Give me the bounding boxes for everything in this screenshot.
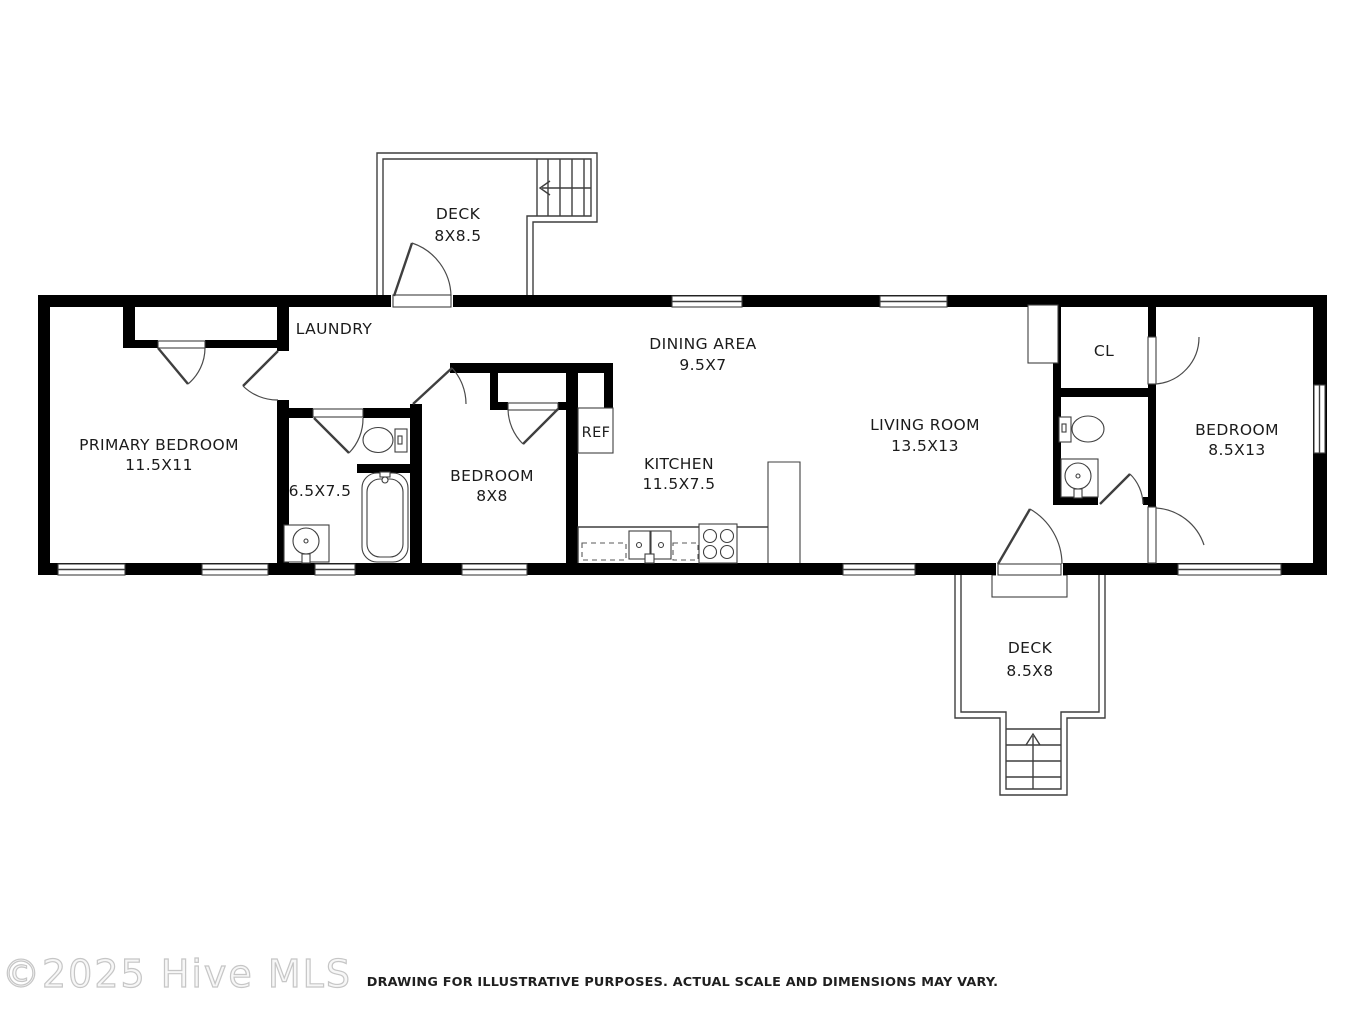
deck-door-threshold [393, 295, 451, 307]
wall-segment [1053, 388, 1156, 397]
utility-nook [1028, 305, 1058, 363]
bedroom-middle-dims: 8X8 [476, 487, 508, 505]
fridge-label: REF [582, 425, 611, 441]
deck-door-top [394, 243, 451, 296]
deck-top-label: DECK [436, 205, 481, 223]
closet-cl-door [1148, 337, 1199, 384]
deck-door-bottom [998, 509, 1062, 564]
kitchen-label: KITCHEN [644, 455, 714, 473]
wall-segment [490, 402, 508, 410]
bedroom-right-label: BEDROOM [1195, 421, 1279, 439]
vanity-sink-icon [1061, 459, 1098, 498]
bedroom-middle-door [413, 368, 466, 404]
window [1314, 385, 1325, 453]
closet-door-threshold [508, 403, 558, 410]
window [1178, 564, 1281, 575]
wall-segment [277, 408, 313, 418]
bedroom-right-door [1148, 507, 1204, 563]
doors [158, 243, 1204, 564]
wall-segment [205, 340, 278, 348]
wall-segment [490, 373, 498, 404]
kitchen-dims: 11.5X7.5 [643, 475, 716, 493]
living-room-label: LIVING ROOM [870, 416, 980, 434]
window [672, 296, 742, 307]
bathroom-2-door [1100, 474, 1143, 504]
kitchen-peninsula [768, 462, 800, 563]
deck-bottom-outer-rail [955, 574, 1105, 795]
living-room-dims: 13.5X13 [891, 437, 959, 455]
bathroom-2-fixtures [1059, 416, 1104, 498]
deck-bottom-label: DECK [1008, 639, 1053, 657]
bathroom-1-dims: 6.5X7.5 [289, 482, 352, 500]
floorplan-page: DECK 8X8.5 DECK 8.5X8 [0, 0, 1365, 1024]
window [880, 296, 947, 307]
dining-area-label: DINING AREA [649, 335, 756, 353]
deck-bottom-inner-rail [961, 574, 1099, 789]
window [58, 564, 125, 575]
disclaimer-text: DRAWING FOR ILLUSTRATIVE PURPOSES. ACTUA… [367, 975, 999, 990]
deck-top-stairs [537, 159, 591, 216]
deck-top: DECK 8X8.5 [377, 153, 597, 296]
bathroom-door-threshold [313, 409, 363, 417]
window [315, 564, 355, 575]
window [843, 564, 915, 575]
bedroom-middle-label: BEDROOM [450, 467, 534, 485]
door-opening [276, 351, 290, 400]
primary-bedroom-dims: 11.5X11 [125, 456, 193, 474]
deck-bottom-dims: 8.5X8 [1006, 662, 1053, 680]
window [202, 564, 268, 575]
wall-segment [123, 340, 158, 348]
deck-top-dims: 8X8.5 [434, 227, 481, 245]
closet-label: CL [1094, 342, 1114, 360]
dining-area-dims: 9.5X7 [679, 356, 726, 374]
toilet-icon [1059, 416, 1104, 442]
wall-segment [1148, 383, 1156, 507]
watermark: ©2025 Hive MLS [2, 952, 352, 996]
window [462, 564, 527, 575]
primary-bedroom-door [243, 351, 278, 400]
bathroom-1-door [314, 418, 363, 453]
wall-segment [410, 404, 422, 563]
kitchen-sink-icon [629, 531, 671, 563]
closet-door-middle [508, 409, 558, 444]
interior-walls [123, 295, 1156, 563]
bathtub-icon [362, 472, 408, 562]
bedroom-right-dims: 8.5X13 [1208, 441, 1265, 459]
vanity-sink-icon [284, 525, 329, 563]
wall-segment [1143, 497, 1156, 505]
deck-door-threshold [998, 564, 1061, 575]
laundry-label: LAUNDRY [296, 320, 373, 338]
deck-bottom-stairs [1006, 729, 1061, 789]
stove-icon [699, 524, 737, 563]
wall-segment [277, 295, 289, 351]
deck-bottom: DECK 8.5X8 [955, 574, 1105, 795]
deck-top-outer-rail [377, 153, 597, 296]
primary-bedroom-label: PRIMARY BEDROOM [79, 436, 239, 454]
wall-segment [604, 373, 613, 408]
cabinet-dashed [673, 543, 698, 560]
wall-segment [566, 363, 578, 563]
wall-segment [450, 363, 613, 373]
floorplan-drawing: DECK 8X8.5 DECK 8.5X8 [0, 0, 1365, 1024]
deck-landing [992, 575, 1067, 597]
fridge: REF [578, 408, 613, 453]
dishwasher-dashed [582, 543, 626, 560]
toilet-icon [363, 428, 407, 453]
wall-segment [1148, 295, 1156, 337]
closet-door [158, 348, 205, 384]
closet-door-threshold [158, 341, 205, 348]
